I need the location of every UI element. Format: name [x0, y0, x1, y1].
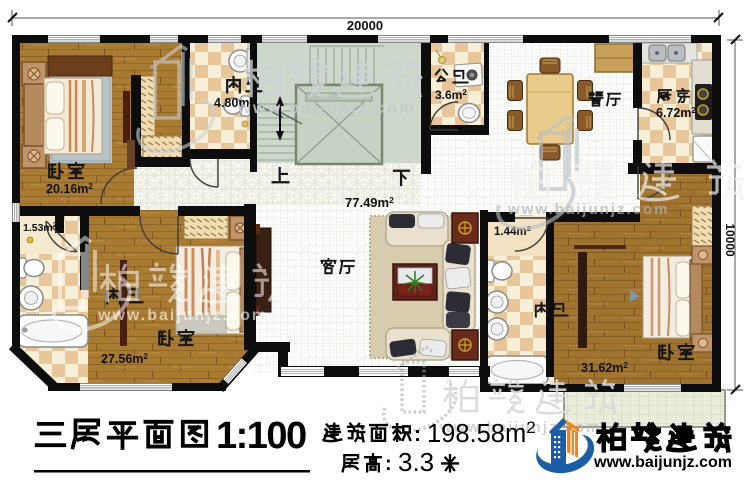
- svg-text::: :: [385, 453, 392, 475]
- svg-text:6.72m2: 6.72m2: [656, 106, 696, 120]
- svg-text:20000: 20000: [347, 18, 383, 33]
- svg-text:www.baijunjz.com: www.baijunjz.com: [237, 100, 416, 117]
- svg-text:198.58m2: 198.58m2: [427, 418, 536, 448]
- svg-text:20.16m2: 20.16m2: [46, 182, 93, 196]
- svg-text:10000: 10000: [723, 223, 737, 257]
- svg-text:27.56m2: 27.56m2: [101, 352, 148, 366]
- svg-text:www.baijunjz.com: www.baijunjz.com: [507, 201, 669, 218]
- svg-text:3.3: 3.3: [398, 447, 434, 477]
- svg-text:31.62m2: 31.62m2: [581, 361, 628, 375]
- svg-text:www.baijunjz.com: www.baijunjz.com: [593, 454, 732, 471]
- svg-text:77.49m2: 77.49m2: [345, 195, 394, 210]
- svg-text:1.53m2: 1.53m2: [23, 220, 57, 234]
- svg-text::: :: [414, 423, 421, 446]
- svg-text:1:100: 1:100: [216, 415, 306, 457]
- svg-text:www.baijunjz.com: www.baijunjz.com: [97, 307, 268, 324]
